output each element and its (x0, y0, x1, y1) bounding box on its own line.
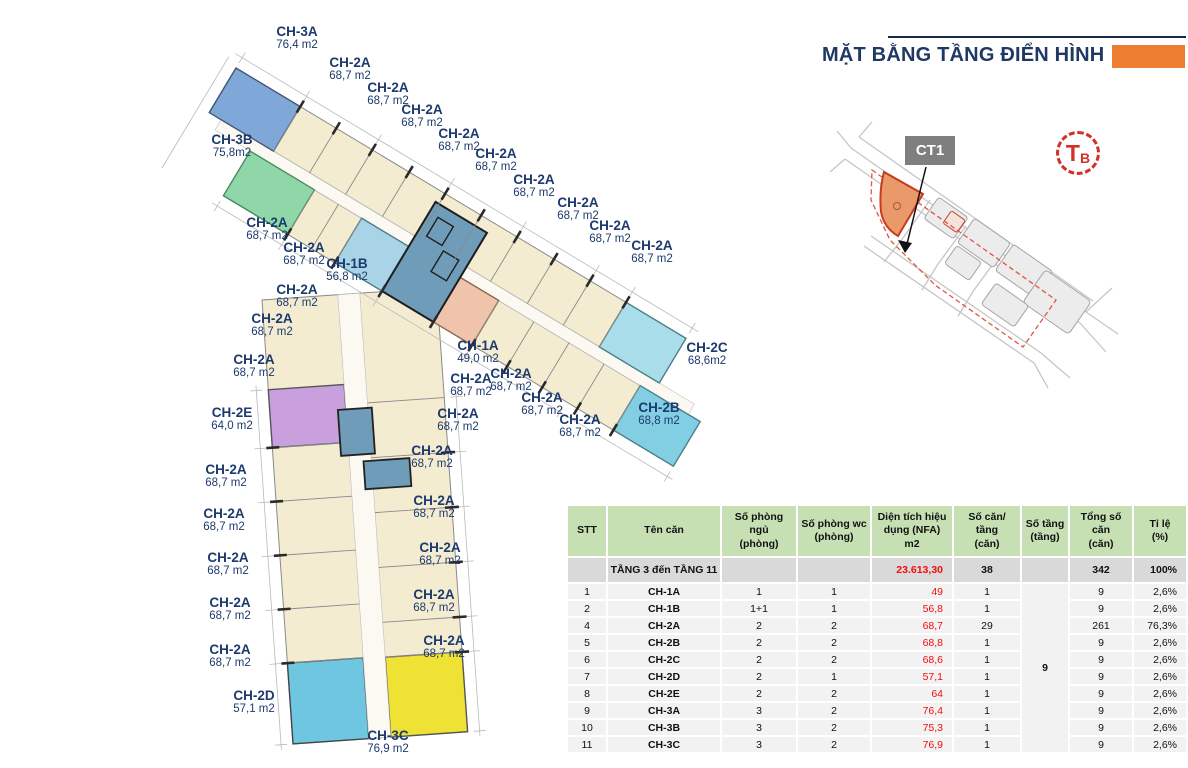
summary-ratio: 100% (1134, 558, 1186, 582)
cell-name: CH-3A (608, 703, 720, 718)
cell-bedrooms: 3 (722, 720, 796, 735)
cell-total: 9 (1070, 601, 1132, 616)
cell-name: CH-2A (608, 618, 720, 633)
unit-label: CH-2C68,6m2 (686, 340, 727, 368)
col-ngu: Số phòng ngủ (phòng) (722, 506, 796, 556)
unit-label: CH-2A68,7 m2 (203, 506, 245, 534)
unit-label-name: CH-2A (233, 352, 275, 367)
cell-floors-merged: 9 (1022, 584, 1068, 752)
compass-sub-letter: B (1080, 151, 1090, 165)
cell-per-floor: 1 (954, 652, 1020, 667)
unit-label: CH-2A68,7 m2 (276, 282, 318, 310)
unit-label-area: 68,7 m2 (475, 161, 517, 174)
unit-label-name: CH-2A (209, 642, 251, 657)
cell-area: 68,7 (872, 618, 952, 633)
unit-label: CH-2A68,7 m2 (413, 587, 455, 615)
page: CH-3A76,4 m2CH-2A68,7 m2CH-2A68,7 m2CH-2… (0, 0, 1188, 768)
cell-per-floor: 1 (954, 686, 1020, 701)
cell-wc: 2 (798, 652, 870, 667)
unit-label-name: CH-3B (211, 132, 252, 147)
unit-label-area: 68,7 m2 (276, 297, 318, 310)
cell-bedrooms: 1+1 (722, 601, 796, 616)
unit-label-name: CH-2B (638, 400, 680, 415)
compass-icon: TB (1056, 131, 1100, 175)
unit-label: CH-2A68,7 m2 (401, 102, 443, 130)
unit-label-name: CH-2A (207, 550, 249, 565)
unit-label: CH-1B56,8 m2 (326, 256, 368, 284)
unit-label: CH-2A68,7 m2 (589, 218, 631, 246)
unit-label-area: 68,7 m2 (413, 508, 455, 521)
cell-per-floor: 1 (954, 584, 1020, 599)
cell-total: 9 (1070, 669, 1132, 684)
cell-wc: 2 (798, 618, 870, 633)
cell-area: 76,9 (872, 737, 952, 752)
summary-floors (1022, 558, 1068, 582)
unit-table: STT Tên căn Số phòng ngủ (phòng) Số phòn… (566, 504, 1188, 754)
unit-label: CH-2D57,1 m2 (233, 688, 275, 716)
cell-area: 56,8 (872, 601, 952, 616)
cell-per-floor: 1 (954, 720, 1020, 735)
table-row: 4CH-2A2268,72926176,3% (568, 618, 1186, 633)
cell-wc: 2 (798, 686, 870, 701)
unit-label-area: 68,7 m2 (631, 253, 673, 266)
ct1-arrowhead (898, 240, 912, 253)
unit-label: CH-2A68,7 m2 (233, 352, 275, 380)
unit-label-name: CH-2A (203, 506, 245, 521)
unit-label-area: 76,4 m2 (276, 39, 318, 52)
cell-stt: 9 (568, 703, 606, 718)
cell-area: 49 (872, 584, 952, 599)
table-row: 7CH-2D2157,1192,6% (568, 669, 1186, 684)
unit-label-name: CH-3C (367, 728, 409, 743)
unit-label-area: 68,7 m2 (589, 233, 631, 246)
unit-label: CH-2A68,7 m2 (246, 215, 288, 243)
unit-label-name: CH-2A (205, 462, 247, 477)
unit-label-area: 68,7 m2 (207, 565, 249, 578)
cell-stt: 2 (568, 601, 606, 616)
ct1-parcel-marker (894, 203, 901, 210)
unit-label: CH-3B75,8m2 (211, 132, 252, 160)
cell-area: 76,4 (872, 703, 952, 718)
cell-name: CH-2B (608, 635, 720, 650)
col-stt: STT (568, 506, 606, 556)
unit-label-name: CH-2A (475, 146, 517, 161)
unit-label-name: CH-2A (419, 540, 461, 555)
col-so-tang: Số tầng (tầng) (1022, 506, 1068, 556)
cell-total: 9 (1070, 686, 1132, 701)
cell-wc: 1 (798, 584, 870, 599)
building-label: CT1 (905, 136, 955, 165)
unit-label-area: 68,7 m2 (203, 521, 245, 534)
unit-label-area: 68,7 m2 (329, 70, 371, 83)
title-rule (888, 36, 1186, 38)
unit-label: CH-2A68,7 m2 (559, 412, 601, 440)
cell-stt: 1 (568, 584, 606, 599)
unit-label: CH-2A68,7 m2 (207, 550, 249, 578)
cell-ratio: 2,6% (1134, 669, 1186, 684)
unit-label-area: 57,1 m2 (233, 703, 275, 716)
unit-label-name: CH-2A (413, 493, 455, 508)
cell-stt: 8 (568, 686, 606, 701)
cell-ratio: 2,6% (1134, 703, 1186, 718)
unit-label: CH-2A68,7 m2 (450, 371, 492, 399)
unit-label: CH-2A68,7 m2 (411, 443, 453, 471)
unit-label-name: CH-2A (283, 240, 325, 255)
cell-stt: 6 (568, 652, 606, 667)
cell-wc: 2 (798, 635, 870, 650)
cell-wc: 2 (798, 720, 870, 735)
summary-label: TẦNG 3 đến TẦNG 11 (608, 558, 720, 582)
unit-label-name: CH-2A (246, 215, 288, 230)
unit-label-area: 49,0 m2 (457, 353, 499, 366)
unit-label-area: 68,7 m2 (413, 602, 455, 615)
page-title: MẶT BẰNG TẦNG ĐIỂN HÌNH (822, 44, 1114, 67)
table-row: 8CH-2E2264192,6% (568, 686, 1186, 701)
unit-label: CH-2A68,7 m2 (521, 390, 563, 418)
cell-name: CH-1A (608, 584, 720, 599)
unit-label-area: 64,0 m2 (211, 420, 253, 433)
unit-label-name: CH-2A (209, 595, 251, 610)
cell-total: 9 (1070, 584, 1132, 599)
cell-name: CH-2C (608, 652, 720, 667)
cell-ratio: 2,6% (1134, 601, 1186, 616)
unit-label-area: 68,7 m2 (209, 610, 251, 623)
unit-label: CH-2A68,7 m2 (475, 146, 517, 174)
cell-per-floor: 1 (954, 669, 1020, 684)
cell-bedrooms: 2 (722, 652, 796, 667)
unit-label-name: CH-2A (423, 633, 465, 648)
col-dien-tich: Diện tích hiệu dụng (NFA) m2 (872, 506, 952, 556)
cell-ratio: 2,6% (1134, 652, 1186, 667)
unit-label-area: 68,7 m2 (438, 141, 480, 154)
summary-per-floor: 38 (954, 558, 1020, 582)
cell-stt: 10 (568, 720, 606, 735)
cell-total: 9 (1070, 703, 1132, 718)
table-row: 11CH-3C3276,9192,6% (568, 737, 1186, 752)
cell-name: CH-2E (608, 686, 720, 701)
unit-label-name: CH-2A (559, 412, 601, 427)
unit-label-area: 68,7 m2 (450, 386, 492, 399)
unit-label-name: CH-2A (521, 390, 563, 405)
unit-label-name: CH-1A (457, 338, 499, 353)
unit-label-name: CH-1B (326, 256, 368, 271)
cell-name: CH-3B (608, 720, 720, 735)
unit-label-area: 68,7 m2 (246, 230, 288, 243)
unit-label-name: CH-2A (589, 218, 631, 233)
cell-bedrooms: 3 (722, 703, 796, 718)
unit-label: CH-3A76,4 m2 (276, 24, 318, 52)
unit-label-area: 68,7 m2 (209, 657, 251, 670)
summary-total: 342 (1070, 558, 1132, 582)
col-ti-le: Tỉ lệ (%) (1134, 506, 1186, 556)
cell-stt: 4 (568, 618, 606, 633)
unit-label-area: 68,7 m2 (559, 427, 601, 440)
unit-label: CH-2A68,7 m2 (631, 238, 673, 266)
table-row: 5CH-2B2268,8192,6% (568, 635, 1186, 650)
unit-label-area: 68,8 m2 (638, 415, 680, 428)
table-row: 10CH-3B3275,3192,6% (568, 720, 1186, 735)
cell-wc: 1 (798, 669, 870, 684)
unit-label: CH-2A68,7 m2 (423, 633, 465, 661)
unit-label: CH-2A68,7 m2 (209, 642, 251, 670)
cell-stt: 11 (568, 737, 606, 752)
cell-area: 68,6 (872, 652, 952, 667)
col-ten-can: Tên căn (608, 506, 720, 556)
title-accent-bar (1112, 45, 1185, 68)
unit-label-name: CH-2A (413, 587, 455, 602)
unit-label: CH-2A68,7 m2 (283, 240, 325, 268)
unit-label-name: CH-2A (276, 282, 318, 297)
unit-label: CH-2A68,7 m2 (419, 540, 461, 568)
unit-label: CH-2B68,8 m2 (638, 400, 680, 428)
unit-label-name: CH-2E (211, 405, 253, 420)
unit-label-name: CH-2A (513, 172, 555, 187)
summary-bedrooms (722, 558, 796, 582)
cell-wc: 2 (798, 703, 870, 718)
site-parcels (924, 197, 1092, 334)
unit-label: CH-2A68,7 m2 (251, 311, 293, 339)
unit-label: CH-2A68,7 m2 (513, 172, 555, 200)
col-wc: Số phòng wc (phòng) (798, 506, 870, 556)
col-tong-can: Tổng số căn (căn) (1070, 506, 1132, 556)
unit-label-name: CH-2A (329, 55, 371, 70)
cell-name: CH-1B (608, 601, 720, 616)
cell-stt: 7 (568, 669, 606, 684)
unit-label-area: 68,7 m2 (521, 405, 563, 418)
unit-label: CH-2A68,7 m2 (329, 55, 371, 83)
table-row: 9CH-3A3276,4192,6% (568, 703, 1186, 718)
unit-label: CH-2E64,0 m2 (211, 405, 253, 433)
ct1-arrow (906, 167, 926, 248)
cell-area: 64 (872, 686, 952, 701)
unit-label-name: CH-2A (631, 238, 673, 253)
cell-wc: 2 (798, 737, 870, 752)
unit-label: CH-2A68,7 m2 (438, 126, 480, 154)
cell-ratio: 2,6% (1134, 737, 1186, 752)
summary-row: TẦNG 3 đến TẦNG 11 23.613,30 38 342 100% (568, 558, 1186, 582)
cell-ratio: 2,6% (1134, 720, 1186, 735)
cell-total: 9 (1070, 720, 1132, 735)
site-parcel-small (943, 211, 966, 233)
unit-label-area: 76,9 m2 (367, 743, 409, 756)
cell-total: 9 (1070, 737, 1132, 752)
summary-stt (568, 558, 606, 582)
unit-label: CH-2A68,7 m2 (209, 595, 251, 623)
unit-label-name: CH-2A (438, 126, 480, 141)
table-row: 6CH-2C2268,6192,6% (568, 652, 1186, 667)
cell-per-floor: 1 (954, 601, 1020, 616)
cell-bedrooms: 2 (722, 686, 796, 701)
cell-per-floor: 1 (954, 737, 1020, 752)
unit-label-area: 68,7 m2 (233, 367, 275, 380)
unit-label-name: CH-3A (276, 24, 318, 39)
unit-label-area: 68,7 m2 (423, 648, 465, 661)
cell-ratio: 76,3% (1134, 618, 1186, 633)
cell-ratio: 2,6% (1134, 635, 1186, 650)
cell-per-floor: 1 (954, 635, 1020, 650)
col-can-tang: Số căn/ tầng (căn) (954, 506, 1020, 556)
cell-total: 261 (1070, 618, 1132, 633)
unit-label-name: CH-2A (557, 195, 599, 210)
unit-label-name: CH-2A (251, 311, 293, 326)
cell-total: 9 (1070, 652, 1132, 667)
cell-stt: 5 (568, 635, 606, 650)
unit-label-area: 56,8 m2 (326, 271, 368, 284)
unit-label-area: 75,8m2 (211, 147, 252, 160)
cell-total: 9 (1070, 635, 1132, 650)
cell-ratio: 2,6% (1134, 686, 1186, 701)
cell-bedrooms: 2 (722, 618, 796, 633)
cell-per-floor: 1 (954, 703, 1020, 718)
cell-bedrooms: 3 (722, 737, 796, 752)
table-row: 1CH-1A11491992,6% (568, 584, 1186, 599)
unit-label-area: 68,7 m2 (283, 255, 325, 268)
summary-wc (798, 558, 870, 582)
cell-area: 57,1 (872, 669, 952, 684)
cell-name: CH-3C (608, 737, 720, 752)
unit-label-area: 68,7 m2 (205, 477, 247, 490)
unit-label: CH-2A68,7 m2 (413, 493, 455, 521)
unit-label-area: 68,7 m2 (513, 187, 555, 200)
unit-label-name: CH-2A (490, 366, 532, 381)
unit-label: CH-2A68,7 m2 (437, 406, 479, 434)
unit-label-area: 68,7 m2 (437, 421, 479, 434)
cell-ratio: 2,6% (1134, 584, 1186, 599)
unit-label-name: CH-2A (450, 371, 492, 386)
unit-label-name: CH-2A (401, 102, 443, 117)
summary-area: 23.613,30 (872, 558, 952, 582)
unit-label: CH-1A49,0 m2 (457, 338, 499, 366)
unit-label-area: 68,7 m2 (251, 326, 293, 339)
unit-label-name: CH-2A (411, 443, 453, 458)
cell-wc: 1 (798, 601, 870, 616)
table-header-row: STT Tên căn Số phòng ngủ (phòng) Số phòn… (568, 506, 1186, 556)
unit-label: CH-3C76,9 m2 (367, 728, 409, 756)
cell-area: 68,8 (872, 635, 952, 650)
compass-main-letter: T (1066, 142, 1080, 165)
cell-per-floor: 29 (954, 618, 1020, 633)
unit-label-name: CH-2C (686, 340, 727, 355)
site-boundary (871, 170, 1056, 347)
unit-label-area: 68,7 m2 (411, 458, 453, 471)
unit-label: CH-2A68,7 m2 (205, 462, 247, 490)
unit-label-name: CH-2A (367, 80, 409, 95)
ct1-parcel (880, 172, 923, 236)
unit-label-name: CH-2A (437, 406, 479, 421)
cell-bedrooms: 2 (722, 669, 796, 684)
cell-name: CH-2D (608, 669, 720, 684)
cell-bedrooms: 2 (722, 635, 796, 650)
unit-label-area: 68,7 m2 (419, 555, 461, 568)
unit-label-area: 68,6m2 (686, 355, 727, 368)
cell-bedrooms: 1 (722, 584, 796, 599)
cell-area: 75,3 (872, 720, 952, 735)
table-row: 2CH-1B1+1156,8192,6% (568, 601, 1186, 616)
unit-label-area: 68,7 m2 (401, 117, 443, 130)
unit-label-name: CH-2D (233, 688, 275, 703)
